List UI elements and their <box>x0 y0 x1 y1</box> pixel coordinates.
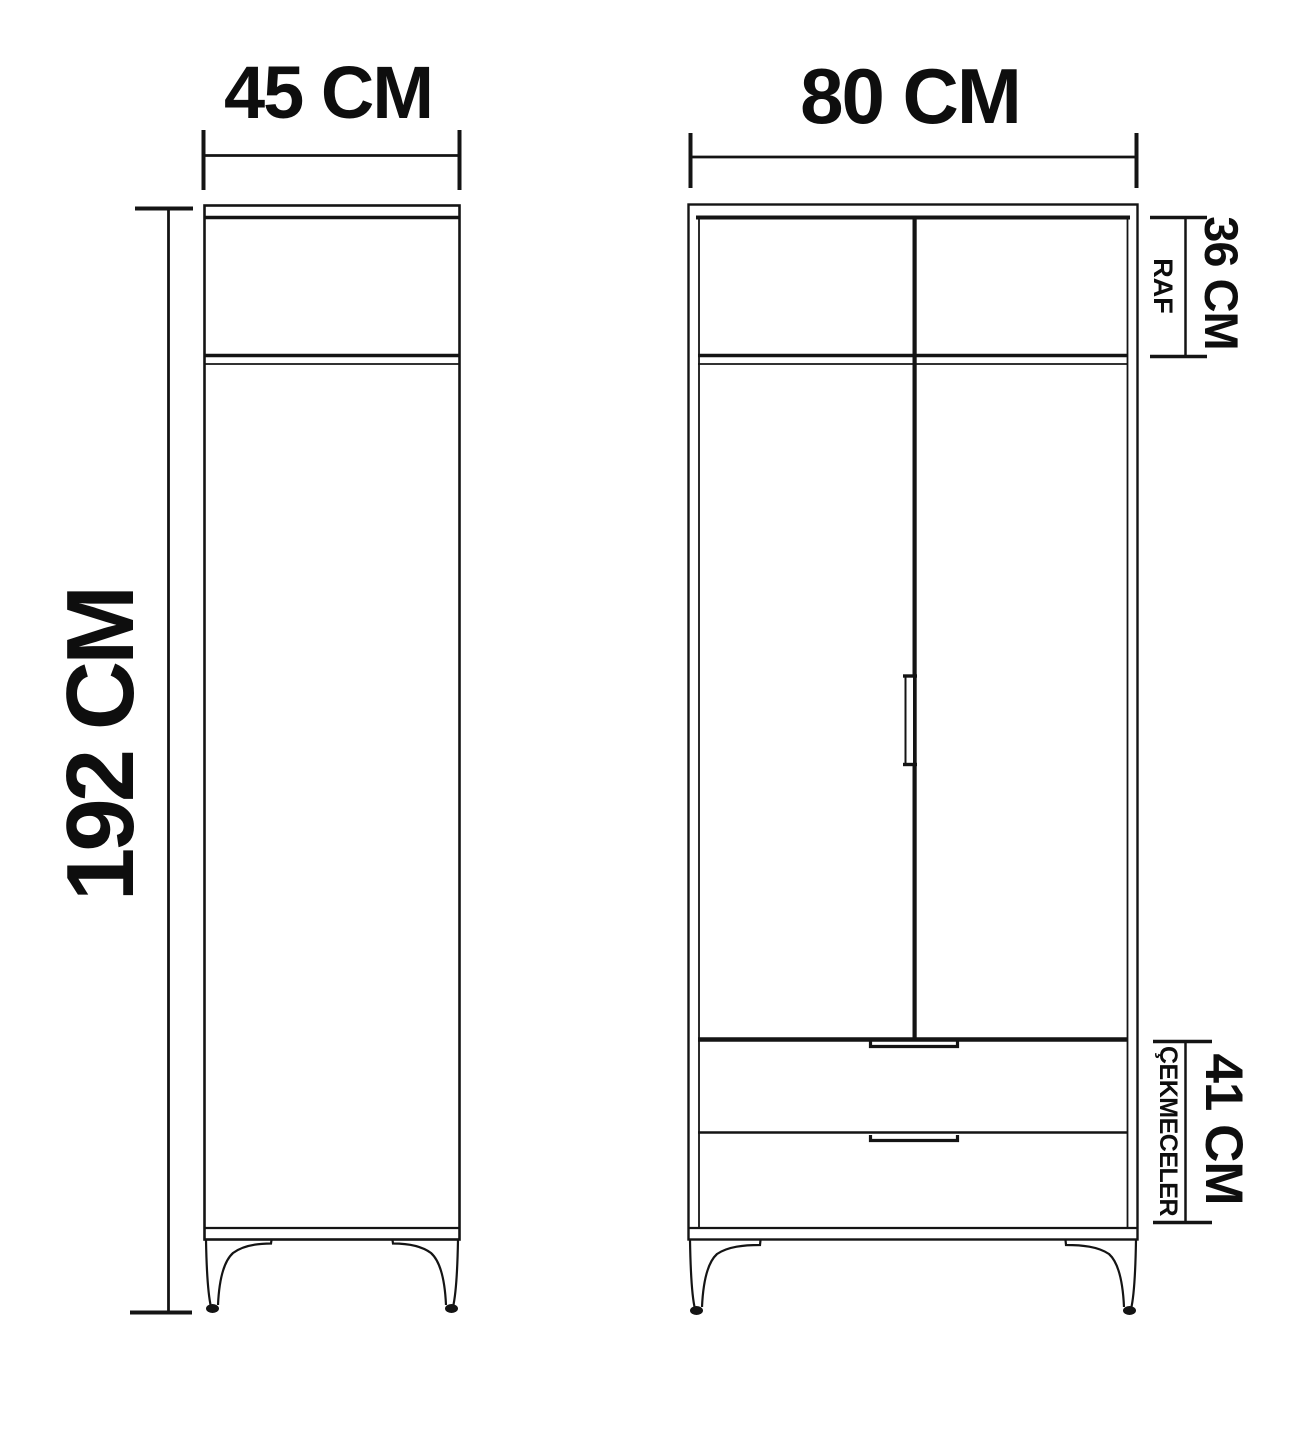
front-view-door-divider <box>913 218 917 1038</box>
front-view-leg-right <box>1066 1240 1137 1315</box>
drawing-canvas: 45 CM 80 CM 192 CM 36 CM RAF 41 CM ÇEKME… <box>0 0 1305 1437</box>
side-view-body <box>205 206 460 1240</box>
side-view-leg-left-foot <box>206 1304 219 1313</box>
front-view <box>688 205 1138 1316</box>
dim-side-width-45 <box>203 130 460 190</box>
wardrobe-line-drawing <box>0 0 1305 1437</box>
side-width-label: 45 CM <box>198 46 458 138</box>
front-width-label: 80 CM <box>780 50 1040 142</box>
front-view-leg-left-foot <box>690 1306 703 1315</box>
front-view-drawer-handle-1 <box>871 1041 958 1047</box>
front-view-drawer-handle-2 <box>871 1134 958 1141</box>
front-view-leg-left <box>690 1240 761 1315</box>
side-view <box>204 206 460 1314</box>
side-view-leg-right-foot <box>445 1304 458 1313</box>
front-view-leg-right-foot <box>1123 1306 1136 1315</box>
shelf-name-label: RAF <box>1148 226 1178 346</box>
side-view-leg-left <box>206 1240 272 1313</box>
side-view-leg-right <box>393 1240 459 1313</box>
height-label: 192 CM <box>41 535 161 955</box>
drawers-height-label: 41 CM <box>1194 1029 1254 1229</box>
drawers-name-label: ÇEKMECELER <box>1154 1026 1182 1236</box>
shelf-height-label: 36 CM <box>1194 183 1250 383</box>
